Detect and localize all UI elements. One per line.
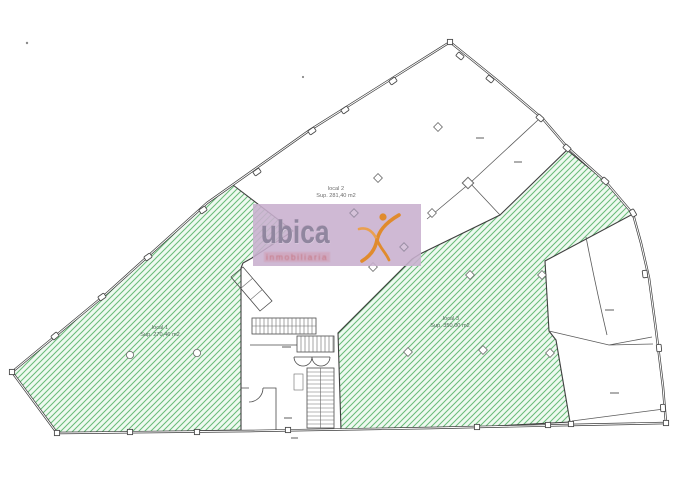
core-room bbox=[241, 374, 303, 430]
local3-sup: Sup. 350,00 m2 bbox=[430, 323, 470, 329]
stairs-mid bbox=[297, 336, 334, 352]
door-arcs bbox=[294, 357, 330, 366]
local1-area bbox=[12, 185, 293, 433]
watermark: ubica inmobiliaria bbox=[253, 204, 421, 266]
stairs-upper bbox=[252, 318, 316, 334]
local3-label: local 3 bbox=[443, 316, 459, 322]
watermark-figure-icon bbox=[347, 206, 419, 264]
floor-plan-page: local 2 Sup. 281,40 m2 local 1 Sup. 270,… bbox=[0, 0, 679, 480]
local1-label: local 1 bbox=[152, 325, 168, 331]
local1-sup: Sup. 270,46 m2 bbox=[140, 332, 180, 338]
logo-diamond-icon bbox=[400, 243, 408, 251]
figure-head bbox=[379, 213, 386, 220]
logo-diamond-icon bbox=[350, 209, 358, 217]
local3-area bbox=[338, 150, 633, 430]
service-core bbox=[231, 267, 334, 430]
right-room-curve bbox=[586, 237, 607, 335]
stair-shaft bbox=[307, 368, 334, 428]
local2-label: local 2 bbox=[328, 186, 344, 192]
stray-specks bbox=[26, 42, 304, 78]
watermark-tagline: inmobiliaria bbox=[264, 252, 330, 262]
local2-sup: Sup. 281,40 m2 bbox=[316, 193, 356, 199]
